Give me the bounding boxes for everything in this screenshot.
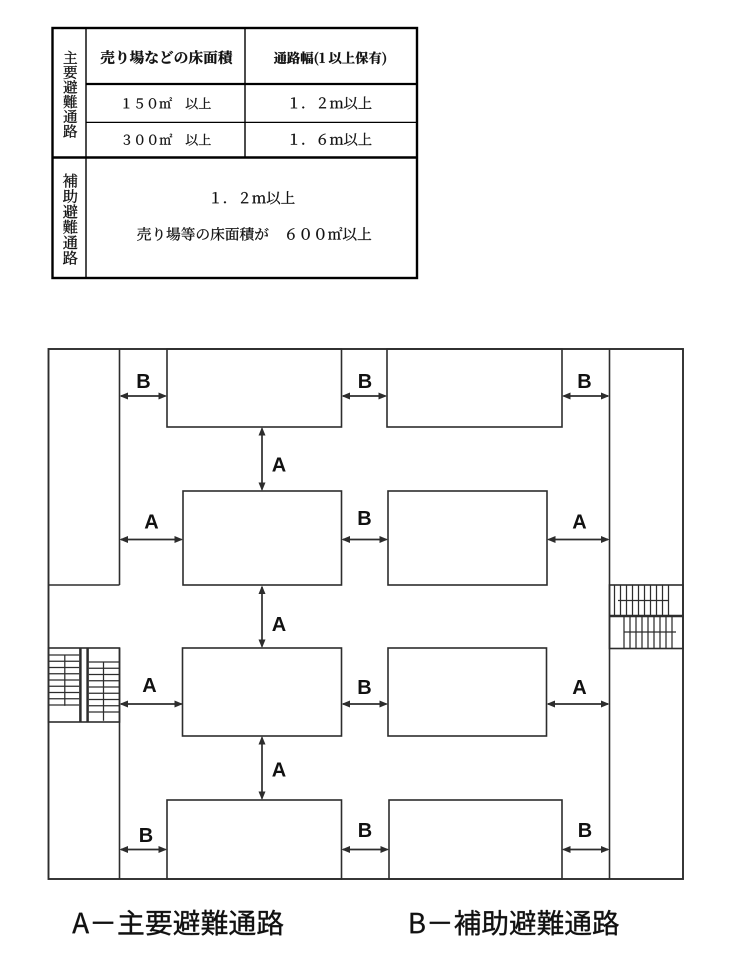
svg-text:B: B <box>577 371 591 393</box>
svg-text:B: B <box>578 820 592 842</box>
svg-text:A: A <box>572 512 586 534</box>
svg-text:A: A <box>272 614 286 636</box>
svg-text:B: B <box>136 371 150 393</box>
svg-text:B: B <box>357 677 371 699</box>
svg-text:B: B <box>358 371 372 393</box>
svg-text:B: B <box>358 820 372 842</box>
svg-text:B: B <box>357 508 371 530</box>
svg-text:A: A <box>272 455 286 477</box>
svg-text:A: A <box>272 760 286 782</box>
svg-text:A: A <box>142 675 156 697</box>
svg-text:B: B <box>139 825 153 847</box>
svg-text:A: A <box>572 677 586 699</box>
svg-text:A: A <box>144 512 158 534</box>
